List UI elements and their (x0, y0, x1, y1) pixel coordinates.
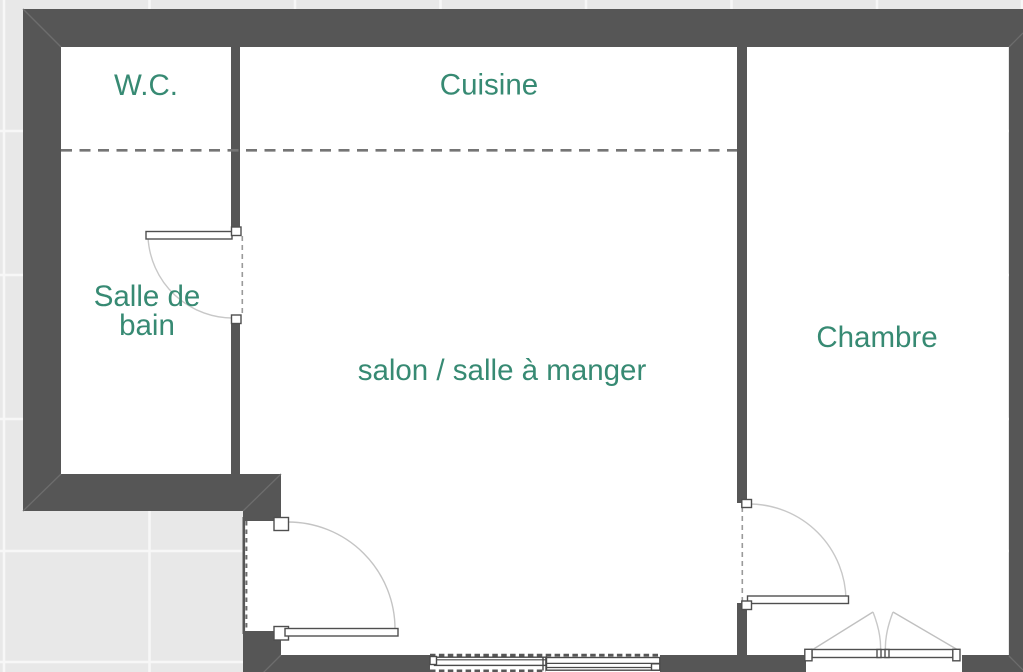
svg-text:Cuisine: Cuisine (440, 69, 538, 102)
svg-text:Chambre: Chambre (816, 321, 937, 354)
svg-text:salon / salle à manger: salon / salle à manger (358, 354, 647, 387)
svg-text:bain: bain (119, 309, 175, 342)
svg-text:W.C.: W.C. (114, 69, 178, 102)
